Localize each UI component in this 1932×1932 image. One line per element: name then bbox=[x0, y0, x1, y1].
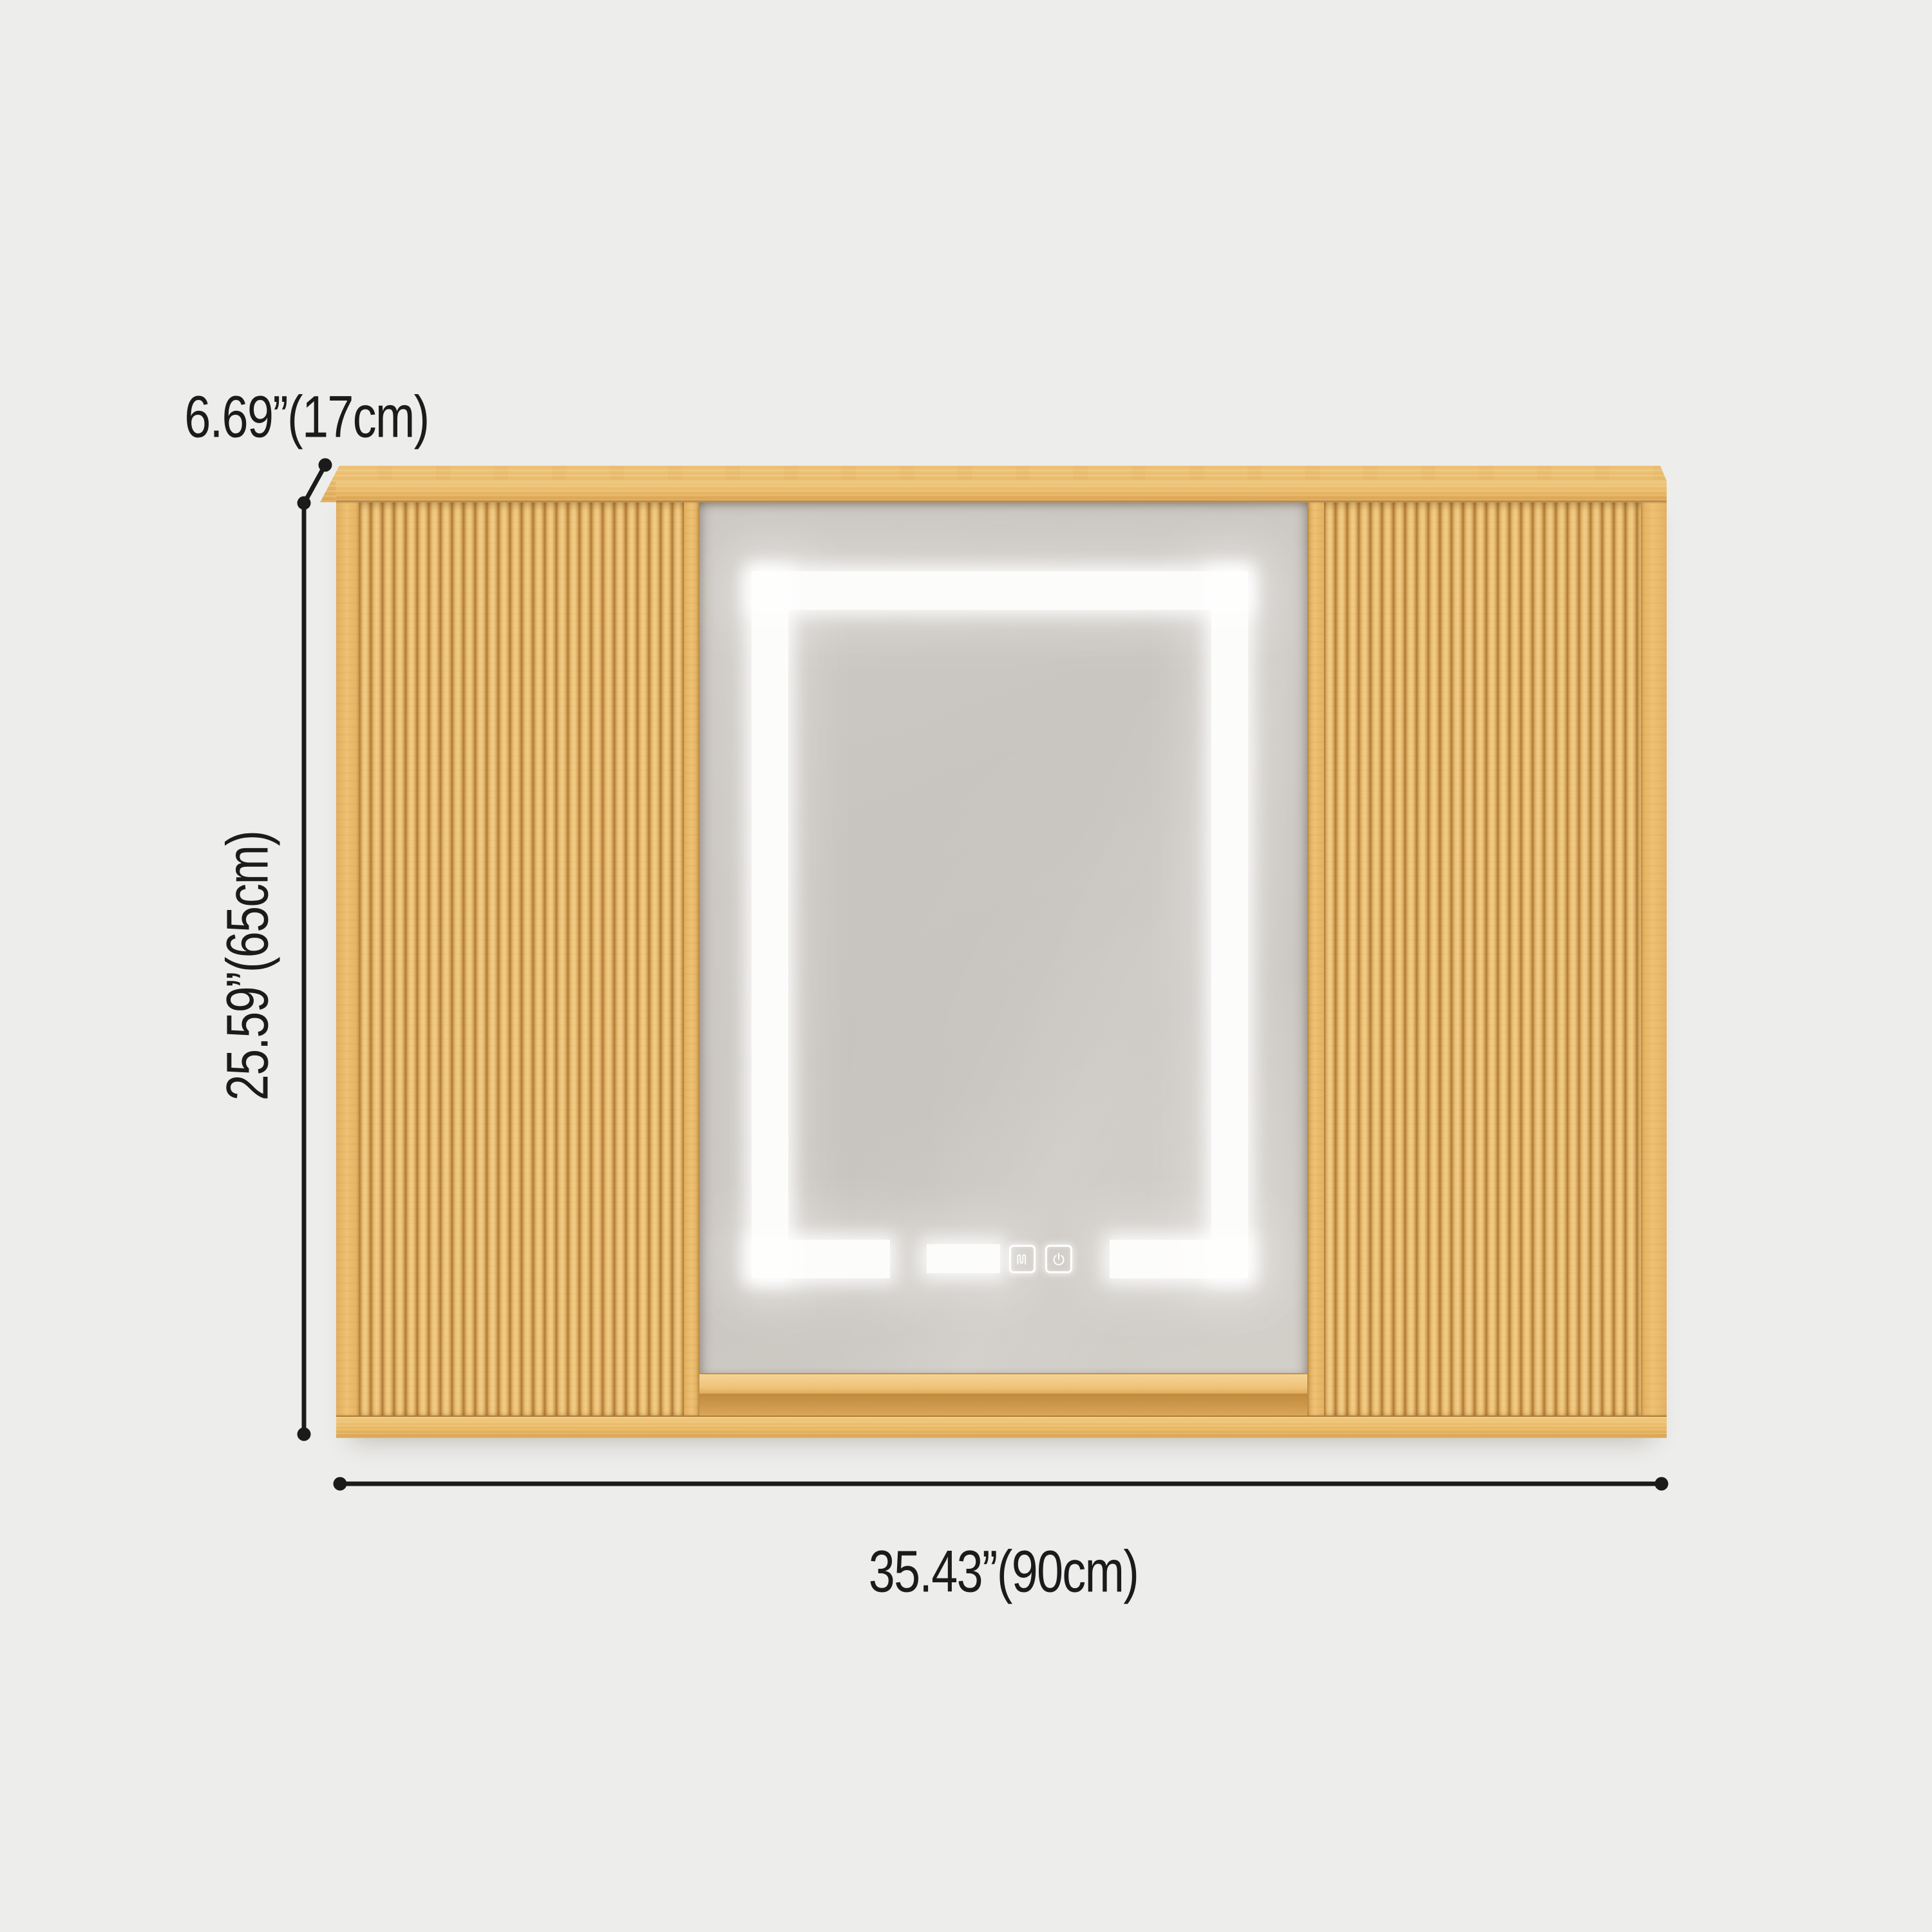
power-icon bbox=[1045, 1245, 1072, 1273]
height-dimension-label: 25.59”(65cm) bbox=[214, 831, 282, 1101]
left-fluted-door bbox=[359, 502, 684, 1416]
depth-leader-line bbox=[305, 465, 325, 502]
width-right-dot bbox=[1655, 1477, 1669, 1491]
right-fluted-door bbox=[1324, 502, 1641, 1416]
led-band-bottom-left bbox=[752, 1240, 890, 1278]
led-band-bottom-right bbox=[1110, 1240, 1248, 1278]
cabinet-body bbox=[336, 482, 1667, 1438]
cabinet-bottom-rail bbox=[336, 1416, 1667, 1438]
width-left-dot bbox=[334, 1477, 347, 1491]
right-inner-stile bbox=[1307, 502, 1324, 1416]
cabinet-top-rail bbox=[336, 482, 1667, 502]
right-edge-stile bbox=[1641, 502, 1667, 1416]
cabinet-front bbox=[336, 502, 1667, 1416]
wood-grain-overlay bbox=[336, 1417, 1667, 1438]
wood-grain-overlay bbox=[336, 482, 1667, 500]
defogger-icon bbox=[1009, 1245, 1036, 1273]
led-display-window bbox=[927, 1244, 1000, 1273]
shelf-shadow bbox=[699, 1394, 1307, 1416]
width-dimension-label: 35.43”(90cm) bbox=[869, 1539, 1138, 1606]
led-band-right bbox=[1211, 571, 1248, 1278]
led-light-frame bbox=[752, 571, 1248, 1278]
left-inner-stile bbox=[684, 502, 699, 1416]
mirror-glass bbox=[699, 502, 1307, 1373]
height-top-dot bbox=[298, 497, 311, 510]
left-edge-stile bbox=[336, 502, 359, 1416]
mirror-sill bbox=[699, 1373, 1307, 1394]
mirror-section bbox=[699, 502, 1307, 1416]
led-band-top bbox=[752, 571, 1248, 610]
product-diagram: 6.69”(17cm) 25.59”(65cm) 35.43”(90cm) bbox=[0, 0, 1932, 1932]
led-band-left bbox=[752, 571, 788, 1278]
depth-leader-dot bbox=[319, 459, 332, 472]
depth-dimension-label: 6.69”(17cm) bbox=[184, 384, 428, 451]
height-bottom-dot bbox=[298, 1428, 311, 1441]
